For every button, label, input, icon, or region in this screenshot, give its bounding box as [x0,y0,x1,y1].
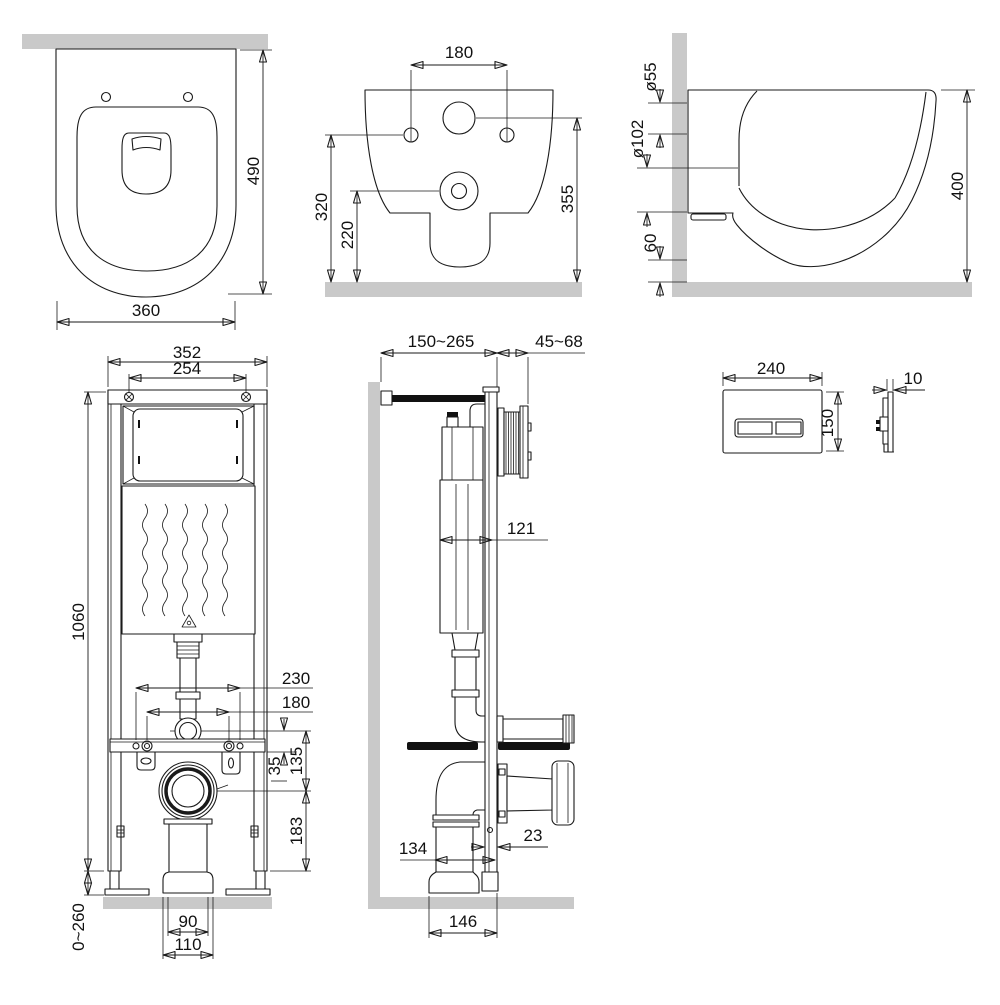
wall-section [22,34,268,49]
floor-section [325,282,582,297]
flush-pipe-side [455,657,476,690]
frame-rail-side [485,390,497,872]
collar-tab [528,452,531,460]
cistern-body-side [440,480,483,633]
toilet-side-view: ø55 ø102 60 400 [628,33,975,297]
connector-bolt [499,811,505,817]
wall-anchor [381,391,392,405]
dim-label-flush-to-bar: 35 [265,757,284,776]
dim-label-outlet-height: 220 [338,221,357,249]
dim-label-inlet-diameter: ø55 [641,62,660,91]
frame-rail-left [108,390,121,871]
floor-section [672,282,972,297]
flush-pipe-collar [174,634,202,642]
collar-front-ring [520,406,528,478]
foot-stem-right [256,871,265,889]
dim-label-drain-socket-width: 110 [174,935,201,954]
dim-label-depth: 490 [244,157,263,185]
collar-tab [528,423,531,431]
mounting-bar-section [407,742,478,750]
dim-label-feet-range: 0~260 [69,903,88,951]
panel-clip [138,420,140,428]
panel-clip [138,456,140,464]
foot-stem-left [110,871,119,889]
dim-label-plate-height: 150 [818,409,837,437]
bracket-left [137,752,155,770]
dim-label-drain-offset: 134 [399,839,427,858]
dim-label-inner-bolt-spacing: 180 [282,693,310,712]
flush-pipe-ring [452,650,479,657]
wall-section [368,382,380,897]
frame-rail-right [254,390,267,871]
drain-connector-bell [552,761,574,825]
bracket-slot [141,758,151,764]
flush-plate-view: 240 150 10 [723,359,925,453]
drain-pipe [169,824,207,872]
dim-label-width: 360 [132,301,160,320]
dim-label-bolt-spacing: 180 [445,43,473,62]
drain-connector-body [507,776,553,811]
panel-clip [236,420,238,428]
frame-side-view: 150~265 45~68 121 23 134 146 [368,332,585,938]
dim-label-rail-depth: 23 [524,826,543,845]
drain-hub-ring [433,815,479,820]
flush-plate-side [888,392,893,452]
connector-bolt [499,769,505,775]
support-rod [392,395,485,402]
bracket-slot [229,758,234,768]
dim-label-cistern-depth: 121 [507,519,535,538]
toilet-top-view: 490 360 [22,34,272,330]
access-panel-frame [123,406,254,484]
installation-drawing: 490 360 180 320 220 355 [0,0,1000,1000]
dim-label-inlet-height: 355 [558,185,577,213]
collar-back-ring [498,408,504,476]
dim-label-flush-to-outlet: 135 [287,747,306,775]
drain-flange [164,819,212,824]
foot-plate-left [105,889,149,895]
wall-section [672,33,687,297]
floor-section [103,897,272,909]
cistern-front [122,486,255,634]
cistern-neck [452,633,478,650]
inlet-connector [498,719,563,739]
flush-pipe-ring [452,690,479,697]
mounting-bar-section [498,742,570,750]
dim-label-bottom-clearance: 60 [641,234,660,253]
flush-pipe-ring [176,692,200,699]
mechanism-pin [876,427,880,431]
dim-label-wall-distance: 150~265 [408,332,475,351]
cistern-top-side [442,427,483,480]
foot-plate-right [226,889,270,895]
dim-label-inner-width: 254 [173,359,201,378]
dim-label-outer-bolt-spacing: 230 [282,669,310,688]
drain-bell [163,872,213,893]
plate-leg [884,444,888,452]
drain-pipe-side [436,827,473,872]
dim-label-plate-thickness: 10 [904,369,923,388]
technical-drawing-sheet: 490 360 180 320 220 355 [0,0,1000,1000]
inlet-valve-cap [447,417,458,427]
frame-front-view: 352 254 1060 230 180 35 135 183 0~260 90… [69,343,313,959]
drain-hub-ring [433,822,479,827]
rail-foot-side [482,872,498,891]
dim-label-outlet-to-base: 183 [287,817,306,845]
flush-elbow-outer [455,697,485,742]
mechanism-pin [876,420,880,424]
mounting-ledge [691,214,726,220]
dim-label-frame-height: 1060 [69,603,88,641]
inlet-flange [497,716,503,742]
toilet-rear-outline [365,90,553,267]
dim-label-drain-pipe-width: 90 [179,912,198,931]
dim-label-height: 400 [948,172,967,200]
flush-pipe [180,658,196,719]
floor-section [368,897,574,909]
frame-top-bar [108,390,267,404]
toilet-outline [56,49,236,297]
drain-elbow-inner [473,810,485,815]
dim-label-bolt-height: 320 [312,193,331,221]
overflow-pipe [470,404,485,427]
inlet-valve-top [447,412,458,417]
toilet-rear-view: 180 320 220 355 [312,43,582,297]
flush-elbow-inner [476,697,485,716]
toilet-side-outline [688,90,936,267]
drain-bell-side [429,872,479,893]
dim-label-outlet-diameter: ø102 [628,120,647,159]
drain-elbow-outer [436,762,485,815]
bracket-right [222,752,240,774]
dim-label-plate-width: 240 [757,359,785,378]
rail-top-cap [483,387,499,392]
panel-clip [236,456,238,464]
dim-label-plate-depth: 45~68 [535,332,583,351]
plate-mechanism [880,417,888,431]
dim-label-base-depth: 146 [449,912,477,931]
